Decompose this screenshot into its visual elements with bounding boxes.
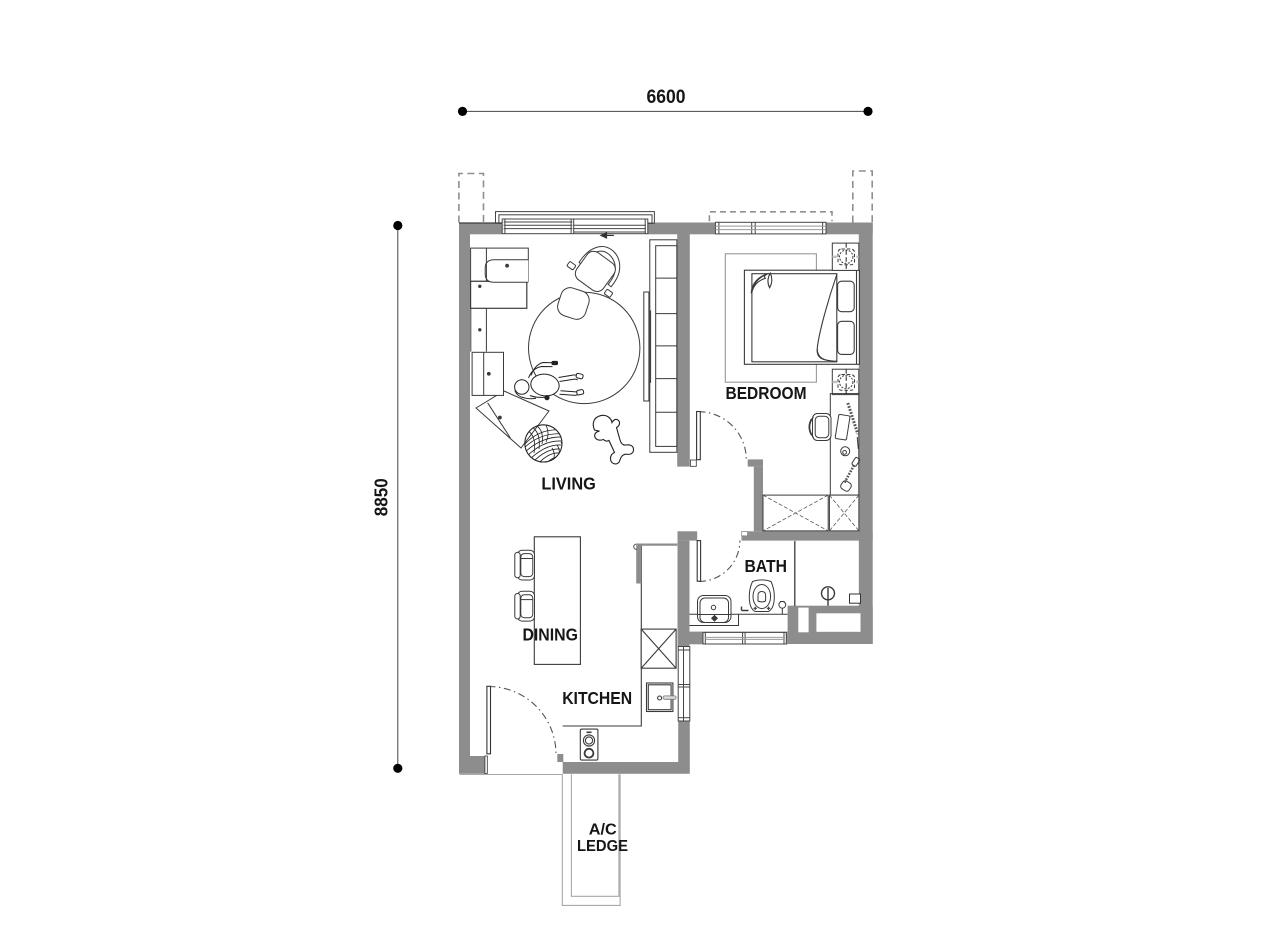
svg-text:8850: 8850 — [371, 478, 392, 516]
svg-text:A/C: A/C — [589, 822, 617, 839]
svg-text:BATH: BATH — [744, 556, 787, 576]
svg-text:LIVING: LIVING — [541, 473, 596, 493]
svg-text:6600: 6600 — [647, 87, 686, 108]
svg-text:KITCHEN: KITCHEN — [562, 688, 632, 708]
svg-text:LEDGE: LEDGE — [577, 838, 628, 855]
svg-text:DINING: DINING — [522, 625, 578, 645]
svg-text:BEDROOM: BEDROOM — [726, 383, 807, 403]
